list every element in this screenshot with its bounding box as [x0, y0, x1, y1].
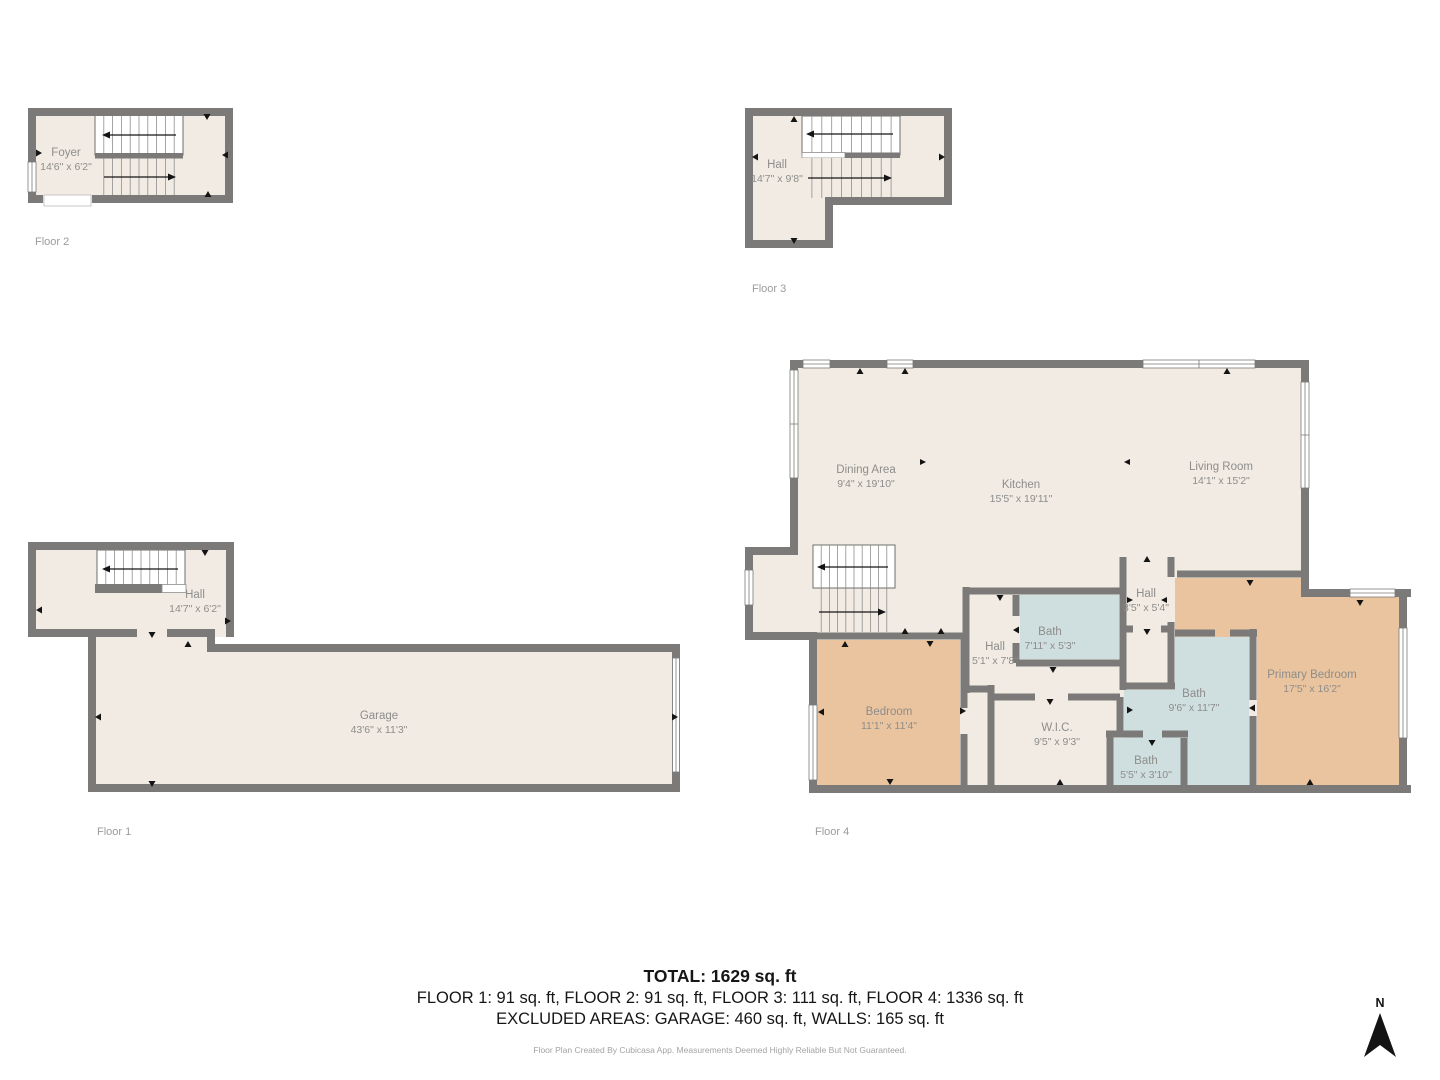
- window: [1399, 628, 1407, 738]
- stair-divider-wall: [95, 153, 183, 159]
- stair-flight-upper: [802, 116, 900, 155]
- north-label: N: [1375, 996, 1384, 1010]
- bedroom-area: [817, 640, 960, 785]
- floor2-entry-recess: [44, 195, 91, 206]
- stair-divider-wall: [845, 153, 900, 159]
- floor4-stairs: [813, 545, 895, 632]
- window: [803, 360, 830, 368]
- window: [1301, 382, 1309, 488]
- bath-area: [1110, 738, 1184, 785]
- floor2-plan: [28, 108, 233, 206]
- floor1-garage-floor-area: [88, 629, 680, 792]
- window: [887, 360, 913, 368]
- floor3-caption: Floor 3: [752, 283, 786, 295]
- excluded-areas-text: EXCLUDED AREAS: GARAGE: 460 sq. ft, WALL…: [0, 1010, 1440, 1029]
- floor2-caption: Floor 2: [35, 236, 69, 248]
- floor-areas-text: FLOOR 1: 91 sq. ft, FLOOR 2: 91 sq. ft, …: [0, 989, 1440, 1008]
- window: [1350, 589, 1395, 597]
- bath-area: [1020, 595, 1119, 659]
- floor1-stairs: [95, 550, 186, 593]
- stair-landing-edge: [162, 585, 186, 593]
- floor2-stairs: [95, 115, 183, 198]
- stair-landing-edge: [802, 153, 845, 159]
- floor3-stairs: [802, 116, 900, 198]
- floor3-plan: [745, 108, 952, 248]
- floor-plan-page: Foyer 14'6" x 6'2" Hall 14'7" x 9'8" Hal…: [0, 0, 1440, 1080]
- floor4-plan: [745, 360, 1411, 793]
- stair-base-wall: [95, 584, 162, 593]
- window: [790, 370, 798, 478]
- window: [28, 162, 36, 192]
- window: [1143, 360, 1255, 368]
- floor1-plan: [28, 542, 680, 792]
- window: [809, 705, 817, 780]
- total-area-text: TOTAL: 1629 sq. ft: [0, 966, 1440, 987]
- floor4-caption: Floor 4: [815, 826, 849, 838]
- disclaimer-text: Floor Plan Created By Cubicasa App. Meas…: [0, 1045, 1440, 1055]
- window: [745, 570, 753, 605]
- floor-plan-canvas: [0, 0, 1440, 1080]
- floor1-caption: Floor 1: [97, 826, 131, 838]
